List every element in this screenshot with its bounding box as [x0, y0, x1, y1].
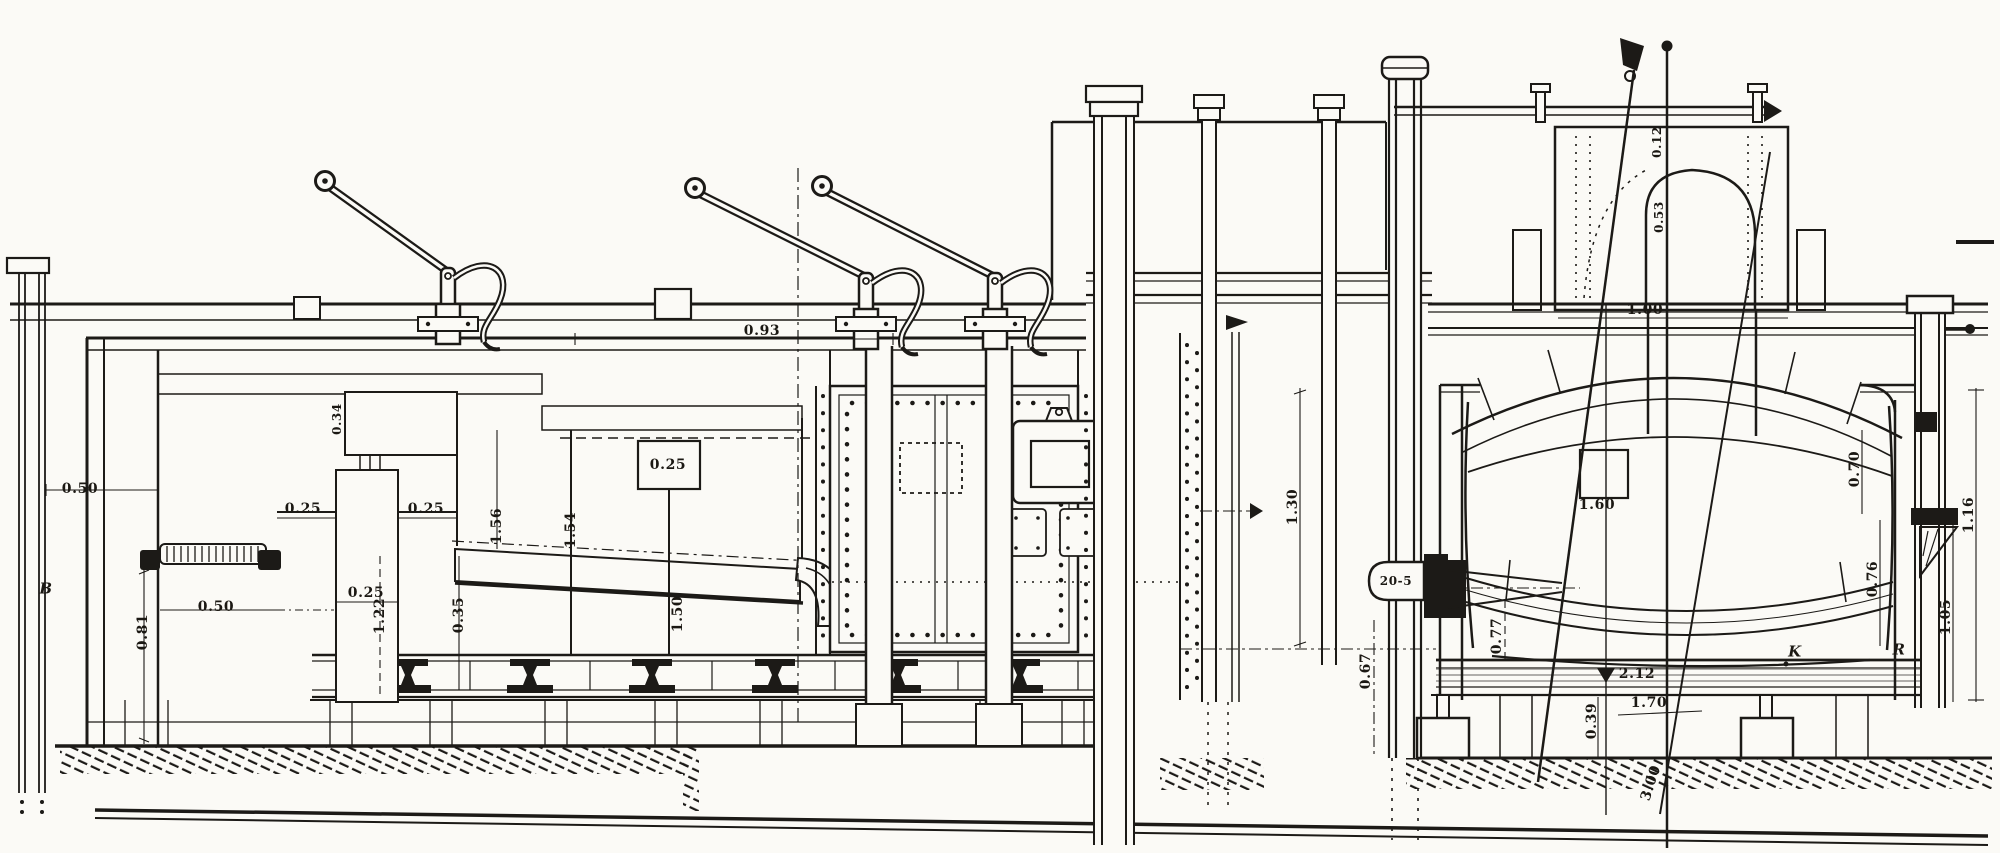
foundation-ground [55, 700, 1992, 845]
dim-top-offset: 0.93 [744, 324, 781, 338]
top-band [10, 289, 1086, 350]
dim-dome-depth: 0.53 [1653, 201, 1665, 233]
center-plate [1580, 450, 1628, 498]
dim-neck-width: 1.00 [1627, 303, 1664, 317]
dim-pillar-height: 1.22 [373, 598, 387, 635]
rocking-lever-1 [316, 172, 504, 350]
cone-bolt [1226, 315, 1248, 330]
dim-pit-depth: 0.81 [136, 614, 150, 651]
dim-left-wall: 0.50 [62, 482, 99, 496]
dim-hearth-width: 0.50 [198, 600, 235, 614]
letter-k: K [1788, 645, 1802, 660]
left-outer-wall [87, 338, 104, 746]
dim-base-length: 1.70 [1631, 696, 1668, 710]
letter-r: R [1892, 643, 1905, 658]
wood-block-right [1741, 718, 1793, 758]
dim-column-height: 1.30 [1286, 489, 1300, 526]
dim-flue-left: 0.25 [285, 502, 322, 516]
dome-furnace-section [1369, 38, 1994, 848]
dim-dome-lip: 0.12 [1651, 126, 1663, 158]
dim-shaft-height: 1.50 [671, 596, 685, 633]
dim-right-upper: 0.70 [1848, 451, 1862, 488]
dim-vessel-center: 1.60 [1579, 498, 1616, 512]
left-corner-column [7, 258, 49, 814]
tap-fitting: 20-5 [1380, 575, 1412, 587]
dim-right-inner: 1.05 [1939, 599, 1953, 636]
dim-chamber-h-left: 1.56 [490, 508, 504, 545]
wood-block-left [1417, 718, 1469, 758]
dim-left-clearance: 0.67 [1359, 653, 1373, 690]
dim-right-lower: 0.76 [1866, 561, 1880, 598]
dim-wall-thick: 0.34 [331, 403, 343, 435]
dim-gap-height: 0.35 [452, 597, 466, 634]
dim-right-outer: 1.16 [1962, 497, 1976, 534]
producer-furnace-section [140, 350, 846, 746]
i-beam-rails [385, 659, 1043, 693]
dim-block-height: 0.39 [1585, 703, 1599, 740]
corrugated-grate [140, 544, 281, 570]
dim-support-height: 0.77 [1490, 618, 1504, 655]
dim-rail-length: 2.12 [1619, 667, 1656, 681]
dim-damper: 0.25 [650, 458, 687, 472]
line-art [0, 0, 2000, 853]
vessel-rail [1417, 660, 1922, 758]
fire-door [1013, 408, 1105, 503]
dim-flue-right: 0.25 [408, 502, 445, 516]
letter-b: B [39, 582, 52, 597]
engraving-canvas: 0.50 B 0.50 0.81 0.25 0.25 0.34 0.25 1.2… [0, 0, 2000, 853]
mid-columns [1052, 86, 1432, 845]
dim-chamber-h-mid: 1.54 [564, 512, 578, 549]
rocking-lever-2 [686, 179, 922, 355]
barrel-vessel [1452, 305, 1902, 815]
inclined-grate [452, 541, 846, 626]
poker-handle [1620, 38, 1644, 71]
